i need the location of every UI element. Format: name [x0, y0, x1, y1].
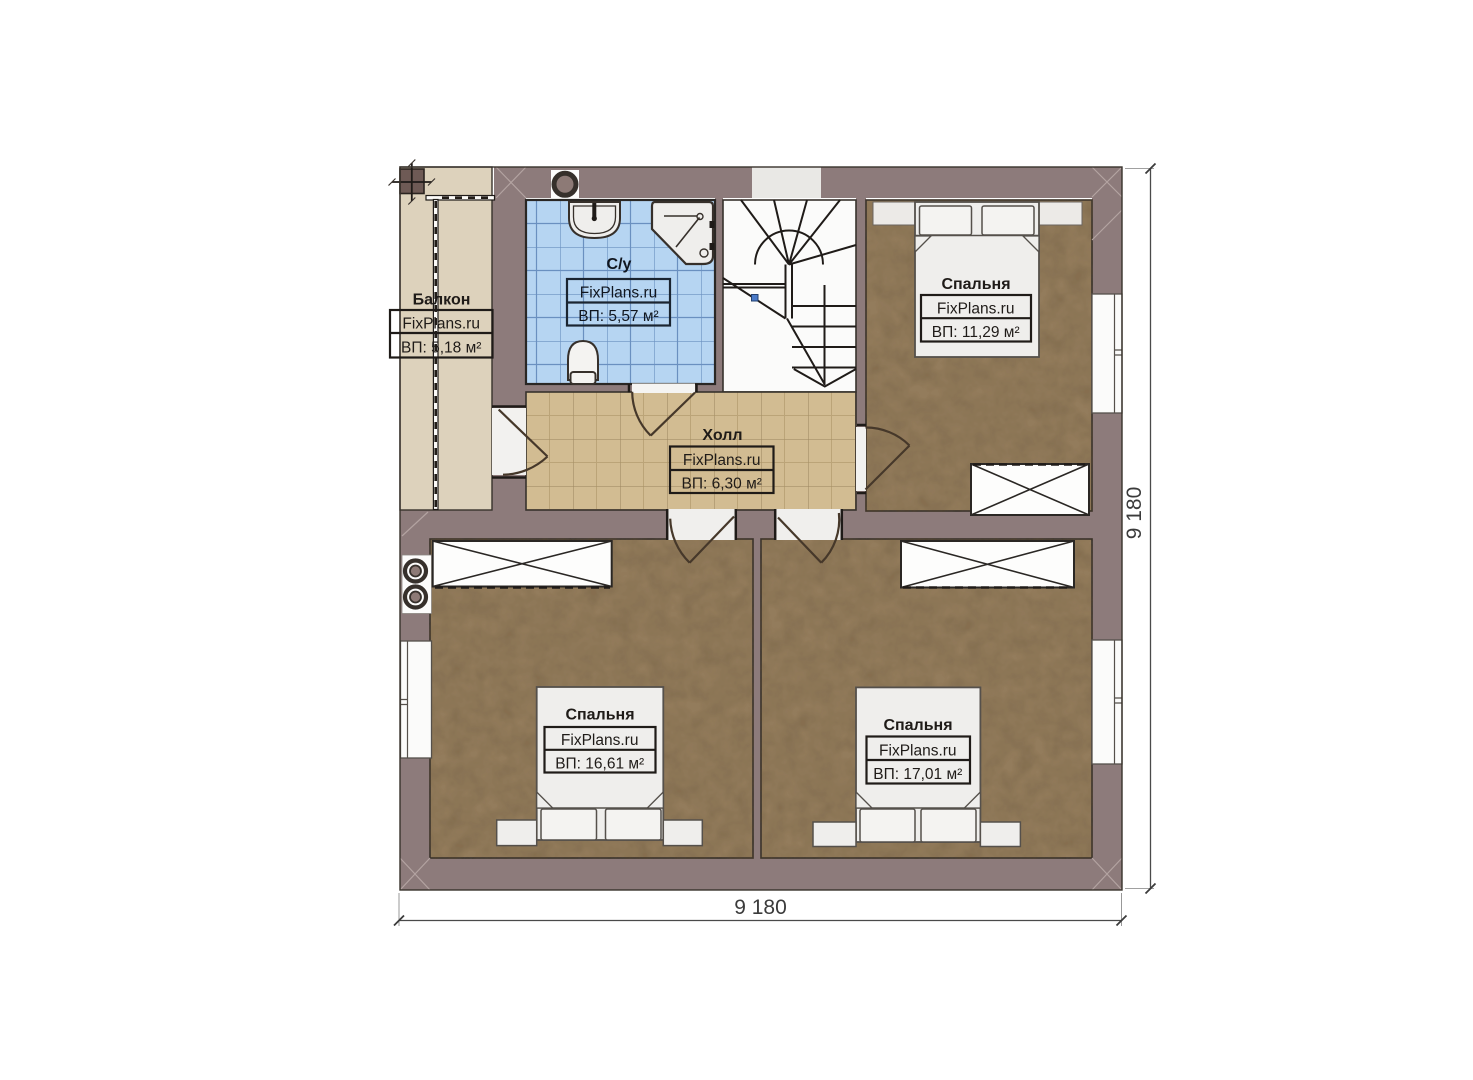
- svg-text:Холл: Холл: [702, 427, 742, 444]
- svg-text:ВП: 5,57 м²: ВП: 5,57 м²: [578, 308, 658, 325]
- svg-text:9 180: 9 180: [734, 896, 787, 919]
- svg-text:ВП: 16,61 м²: ВП: 16,61 м²: [555, 756, 644, 773]
- svg-text:FixPlans.ru: FixPlans.ru: [937, 301, 1015, 318]
- svg-text:FixPlans.ru: FixPlans.ru: [580, 285, 658, 302]
- svg-text:FixPlans.ru: FixPlans.ru: [561, 732, 639, 749]
- svg-text:ВП: 11,29 м²: ВП: 11,29 м²: [932, 324, 1020, 341]
- svg-text:Спальня: Спальня: [941, 276, 1010, 293]
- svg-text:FixPlans.ru: FixPlans.ru: [879, 743, 957, 760]
- svg-text:FixPlans.ru: FixPlans.ru: [402, 316, 480, 333]
- svg-text:ВП: 6,30 м²: ВП: 6,30 м²: [682, 476, 762, 493]
- svg-text:FixPlans.ru: FixPlans.ru: [683, 452, 761, 469]
- svg-text:Балкон: Балкон: [413, 292, 471, 309]
- svg-text:С/у: С/у: [607, 256, 632, 273]
- svg-text:ВП: 17,01 м²: ВП: 17,01 м²: [873, 766, 962, 783]
- svg-text:Спальня: Спальня: [565, 707, 634, 724]
- svg-text:Спальня: Спальня: [883, 717, 952, 734]
- svg-text:9 180: 9 180: [1123, 487, 1146, 540]
- svg-text:ВП: 5,18 м²: ВП: 5,18 м²: [401, 340, 481, 357]
